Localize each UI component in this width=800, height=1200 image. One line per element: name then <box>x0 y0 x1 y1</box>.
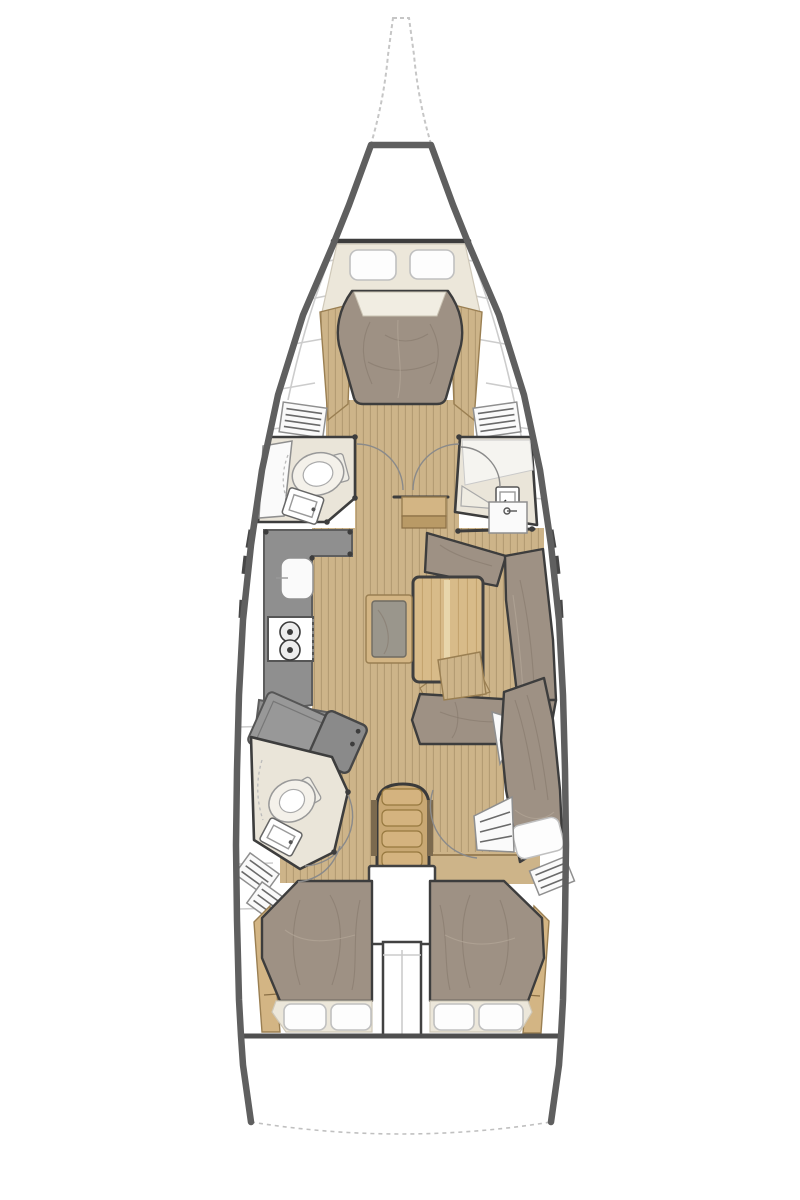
vent-louver-starboard <box>473 402 521 438</box>
vent-louver-port <box>279 402 327 438</box>
bow-pulpit-icon <box>371 18 431 144</box>
berth-pillow <box>434 1004 474 1030</box>
stove-icon <box>268 617 313 661</box>
forward-head-port <box>258 437 355 525</box>
berth-pillow <box>350 250 396 280</box>
engine-compartment <box>369 866 435 944</box>
companionway-stairs <box>371 784 433 872</box>
sheet-fold <box>354 292 446 316</box>
floorplan-canvas <box>0 0 800 1200</box>
floor-forward <box>326 400 474 438</box>
companionway-step <box>402 497 446 516</box>
salon-bench <box>366 595 412 663</box>
berth-pillow <box>331 1004 371 1030</box>
berth-pillow <box>479 1004 523 1030</box>
desk-shelf <box>438 652 486 700</box>
berth-pillow <box>410 250 454 279</box>
yacht-floorplan <box>0 0 800 1200</box>
berth-pillow <box>284 1004 326 1030</box>
wet-bar <box>489 502 527 533</box>
